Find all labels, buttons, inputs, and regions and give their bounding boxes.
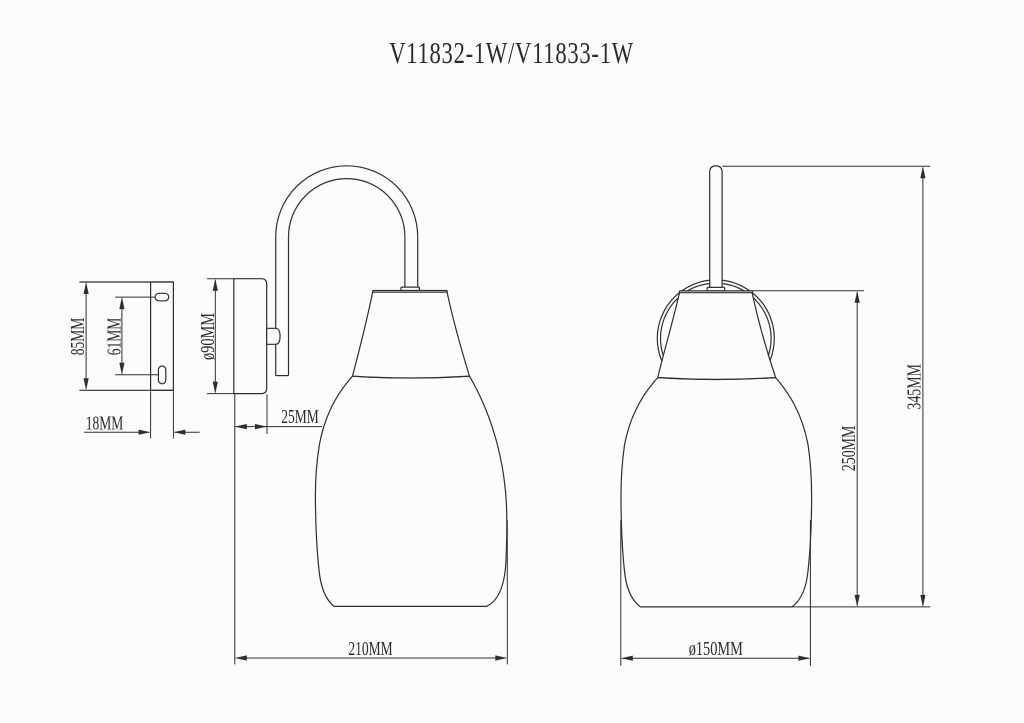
svg-text:ø90MM: ø90MM — [195, 313, 218, 360]
svg-text:V11832-1W/V11833-1W: V11832-1W/V11833-1W — [389, 36, 634, 70]
svg-text:61MM: 61MM — [103, 318, 125, 356]
svg-text:85MM: 85MM — [66, 318, 88, 356]
svg-text:ø150MM: ø150MM — [689, 636, 743, 659]
svg-text:250MM: 250MM — [836, 425, 859, 471]
svg-text:345MM: 345MM — [902, 364, 925, 410]
svg-text:25MM: 25MM — [281, 405, 319, 427]
svg-text:210MM: 210MM — [348, 637, 392, 659]
svg-text:18MM: 18MM — [86, 412, 124, 434]
